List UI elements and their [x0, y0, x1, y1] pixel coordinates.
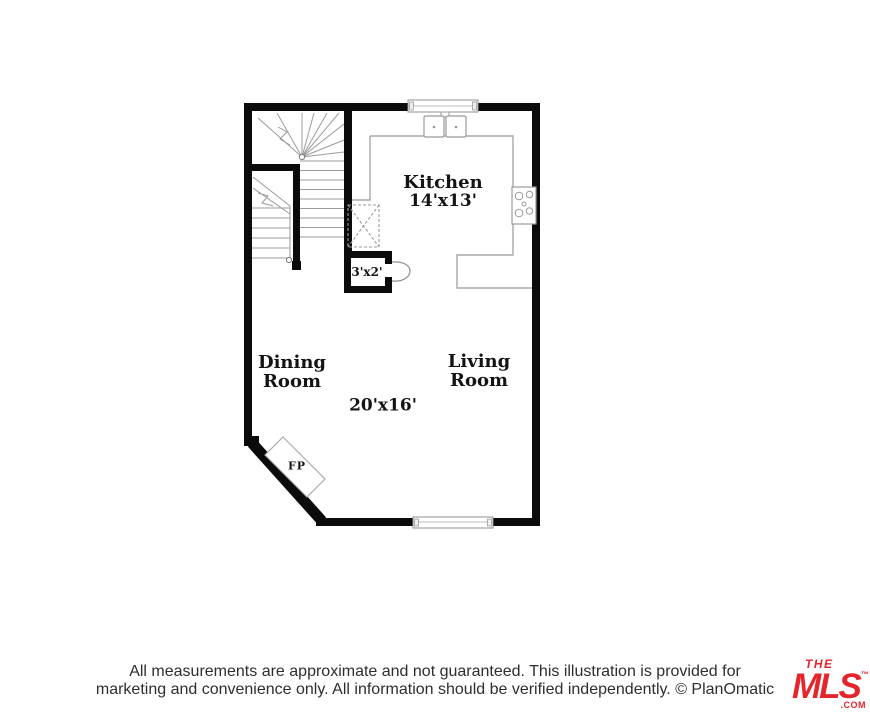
- living-room-label: Living Room: [448, 352, 510, 390]
- top-window: [408, 100, 478, 112]
- floor-plan-page: Kitchen 14'x13' Dining Room Living Room …: [0, 0, 870, 720]
- kitchen-sink: [424, 112, 466, 137]
- kitchen-dims: 14'x13': [403, 192, 482, 211]
- closet-door: [392, 262, 410, 281]
- staircase-lower: [252, 177, 292, 263]
- themls-logo: THE MLS™ .COM: [792, 658, 868, 712]
- kitchen-label: Kitchen 14'x13': [403, 173, 482, 211]
- bottom-window: [413, 517, 493, 528]
- fireplace-label: FP: [288, 460, 306, 473]
- pantry-box: [348, 205, 379, 247]
- disclaimer: All measurements are approximate and not…: [0, 663, 870, 698]
- closet-dims: 3'x2': [351, 265, 382, 279]
- logo-mls-text: MLS™: [792, 669, 868, 704]
- logo-trademark: ™: [861, 671, 867, 679]
- floor-plan-drawing: [0, 0, 870, 720]
- dining-room-label: Dining Room: [258, 353, 326, 391]
- stove-cooktop: [512, 187, 536, 224]
- kitchen-name: Kitchen: [403, 173, 482, 192]
- disclaimer-line-1: All measurements are approximate and not…: [0, 663, 870, 681]
- main-area-dims: 20'x16': [349, 397, 417, 416]
- disclaimer-line-2: marketing and convenience only. All info…: [0, 681, 870, 699]
